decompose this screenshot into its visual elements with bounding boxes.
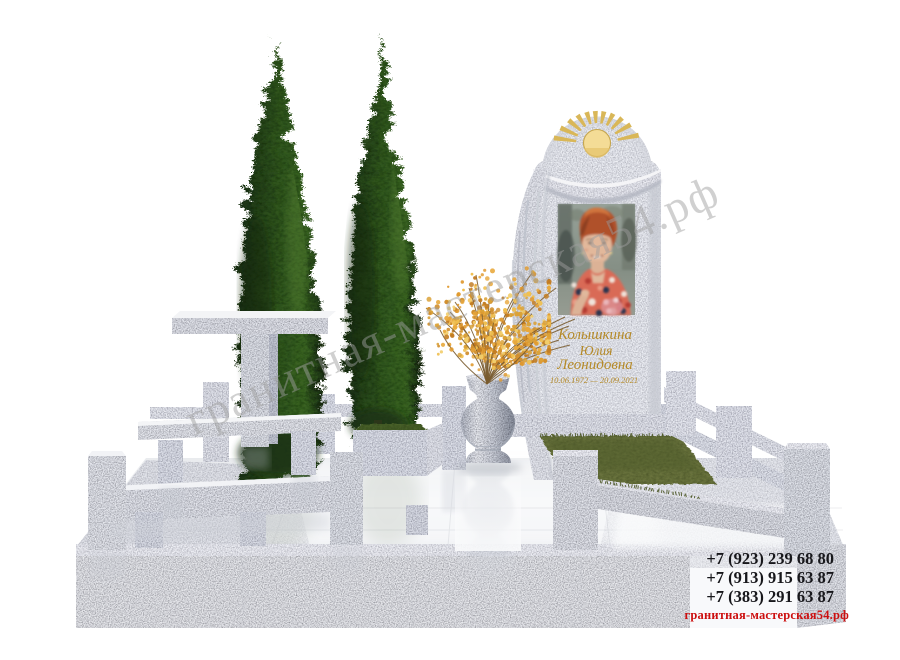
svg-text:10.06.1972 — 20.09.2021: 10.06.1972 — 20.09.2021 xyxy=(550,375,638,385)
svg-text:Леонидовна: Леонидовна xyxy=(556,357,633,373)
svg-text:Колышкина: Колышкина xyxy=(557,327,632,343)
svg-text:+7 (923) 239 68 80: +7 (923) 239 68 80 xyxy=(706,549,834,568)
svg-text:Юлия: Юлия xyxy=(579,343,613,358)
svg-text:+7 (383) 291 63 87: +7 (383) 291 63 87 xyxy=(706,587,834,606)
svg-text:гранитная-мастерская54.рф: гранитная-мастерская54.рф xyxy=(685,608,850,622)
svg-text:+7 (913) 915 63 87: +7 (913) 915 63 87 xyxy=(706,568,834,587)
